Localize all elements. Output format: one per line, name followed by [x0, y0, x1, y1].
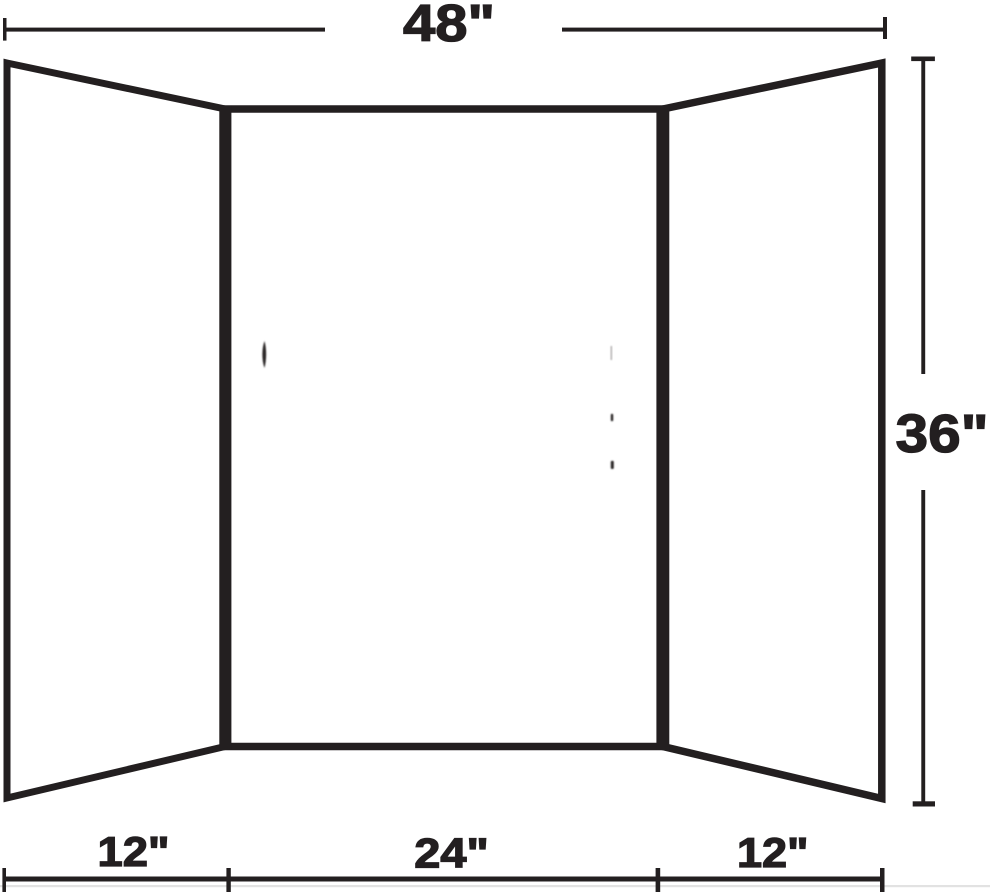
svg-text:48": 48"	[403, 0, 495, 53]
svg-text:24": 24"	[414, 830, 489, 877]
svg-text:36": 36"	[896, 404, 989, 464]
svg-text:12": 12"	[737, 829, 809, 876]
svg-text:12": 12"	[98, 828, 170, 875]
